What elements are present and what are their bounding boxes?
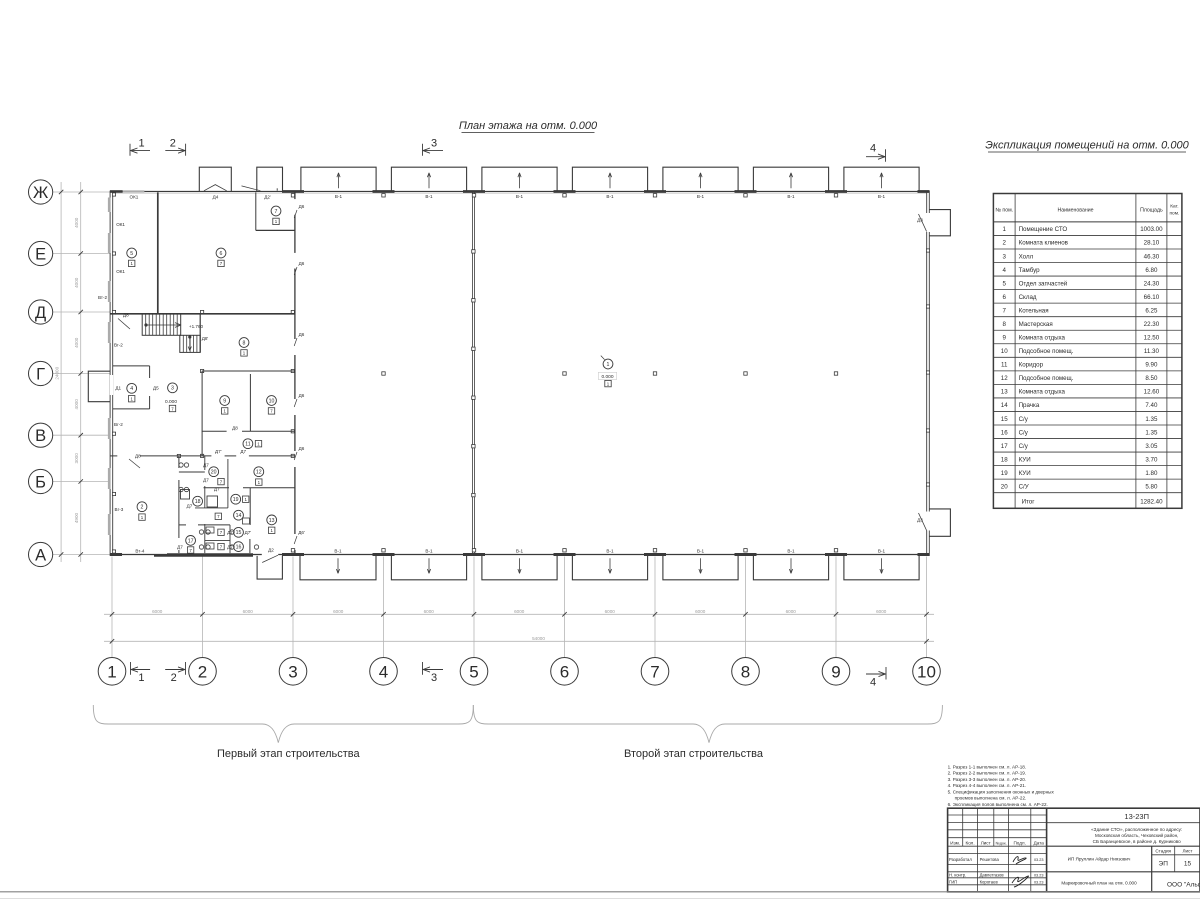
svg-text:1: 1 <box>138 138 144 150</box>
svg-text:12: 12 <box>256 470 262 476</box>
svg-text:Мастерская: Мастерская <box>1019 321 1053 328</box>
svg-text:1: 1 <box>107 662 116 681</box>
svg-text:6000: 6000 <box>514 609 525 614</box>
svg-text:5: 5 <box>469 662 478 681</box>
svg-text:Д7: Д7 <box>187 504 193 509</box>
svg-text:03.23: 03.23 <box>1034 858 1044 862</box>
svg-text:4: 4 <box>1003 267 1007 274</box>
svg-text:6.25: 6.25 <box>1145 307 1158 314</box>
svg-text:24000: 24000 <box>54 366 59 379</box>
svg-text:Разработал: Разработал <box>949 857 972 862</box>
svg-text:Г: Г <box>36 365 45 383</box>
svg-text:+1.760: +1.760 <box>189 324 204 329</box>
svg-text:13: 13 <box>1001 389 1008 396</box>
svg-text:1: 1 <box>607 362 610 368</box>
svg-text:03.23: 03.23 <box>1034 881 1044 885</box>
svg-text:3.70: 3.70 <box>1145 456 1158 463</box>
svg-text:7: 7 <box>275 209 278 215</box>
svg-text:Д7: Д7 <box>240 449 246 454</box>
svg-text:9: 9 <box>223 398 226 404</box>
svg-text:С/у: С/у <box>1019 443 1029 450</box>
svg-text:ОК1: ОК1 <box>116 269 125 274</box>
svg-text:Помещение СТО: Помещение СТО <box>1019 226 1068 233</box>
svg-text:4000: 4000 <box>74 217 79 228</box>
svg-text:16: 16 <box>236 545 242 551</box>
svg-text:Д3: Д3 <box>917 218 923 223</box>
svg-text:С/у: С/у <box>1019 416 1029 423</box>
svg-text:пом.: пом. <box>1169 212 1179 217</box>
svg-text:С/у: С/у <box>1019 429 1029 436</box>
svg-text:Д7: Д7 <box>214 487 220 492</box>
svg-text:12.60: 12.60 <box>1144 389 1160 396</box>
svg-text:4: 4 <box>870 677 876 689</box>
svg-text:54000: 54000 <box>532 636 545 641</box>
svg-text:Московская область, Чеховский: Московская область, Чеховский район, <box>1095 832 1179 838</box>
svg-text:8: 8 <box>741 662 750 681</box>
svg-text:1.80: 1.80 <box>1145 470 1158 477</box>
svg-text:Вг-2: Вг-2 <box>114 422 123 427</box>
svg-text:4: 4 <box>379 662 388 681</box>
svg-text:17: 17 <box>1001 443 1008 450</box>
svg-text:Тамбур: Тамбур <box>1019 267 1041 274</box>
svg-text:№ пом.: № пом. <box>995 208 1013 214</box>
svg-text:6000: 6000 <box>786 609 797 614</box>
svg-text:Изм.: Изм. <box>950 841 960 846</box>
svg-text:С/У: С/У <box>1019 483 1029 490</box>
svg-text:11.30: 11.30 <box>1144 348 1160 355</box>
svg-text:ООО "Альфа-проект": ООО "Альфа-проект" <box>1167 881 1200 888</box>
svg-text:Д8: Д8 <box>232 426 238 431</box>
svg-text:14: 14 <box>236 513 242 519</box>
svg-text:19: 19 <box>233 497 239 503</box>
svg-text:2: 2 <box>141 505 144 511</box>
svg-text:СБ Баранцевское, в районе д. К: СБ Баранцевское, в районе д. Курниково <box>1093 838 1182 844</box>
svg-text:2: 2 <box>170 138 176 150</box>
svg-text:В-1: В-1 <box>425 194 433 199</box>
svg-text:5: 5 <box>1003 280 1007 287</box>
svg-text:В-1: В-1 <box>878 194 886 199</box>
svg-text:Д7: Д7 <box>203 478 209 483</box>
svg-text:КУИ: КУИ <box>1019 456 1031 463</box>
svg-text:Комната отдыха: Комната отдыха <box>1019 389 1066 396</box>
svg-text:2. Разрез 2-2 выполнен см. л.: 2. Разрез 2-2 выполнен см. л. АР-19. <box>948 771 1027 776</box>
svg-text:6. Экспликация полов выполнена: 6. Экспликация полов выполнена см. л. АР… <box>948 802 1048 807</box>
svg-text:Д6: Д6 <box>299 261 305 266</box>
svg-text:4000: 4000 <box>74 337 79 348</box>
svg-text:Д6: Д6 <box>299 204 305 209</box>
svg-text:Комната отдыха: Комната отдыха <box>1019 335 1066 342</box>
svg-text:3: 3 <box>1003 253 1007 260</box>
svg-text:Коридор: Коридор <box>1019 362 1044 369</box>
svg-text:Вт-2: Вт-2 <box>98 295 108 300</box>
svg-text:Д7': Д7' <box>245 530 252 535</box>
svg-text:28.10: 28.10 <box>1144 240 1160 247</box>
svg-text:6000: 6000 <box>333 609 344 614</box>
svg-text:6: 6 <box>220 251 223 257</box>
svg-text:4. Разрез 4-4 выполнен см. л.: 4. Разрез 4-4 выполнен см. л. АР-21. <box>948 783 1027 788</box>
svg-text:Д7': Д7' <box>215 449 222 454</box>
svg-text:3: 3 <box>171 386 174 392</box>
svg-text:16: 16 <box>1001 429 1008 436</box>
svg-text:В-1: В-1 <box>878 548 886 553</box>
svg-text:20: 20 <box>211 470 217 476</box>
svg-text:Лист: Лист <box>1183 848 1194 853</box>
svg-text:66.10: 66.10 <box>1144 294 1160 301</box>
svg-text:4000: 4000 <box>74 277 79 288</box>
svg-text:1: 1 <box>1003 226 1007 233</box>
svg-text:6000: 6000 <box>876 609 887 614</box>
svg-text:Н. контр.: Н. контр. <box>949 872 966 877</box>
svg-text:17: 17 <box>188 538 194 544</box>
svg-text:ОК1: ОК1 <box>116 222 125 227</box>
svg-text:24.30: 24.30 <box>1144 280 1160 287</box>
svg-text:10: 10 <box>1001 348 1008 355</box>
svg-text:План этажа на отм. 0.000: План этажа на отм. 0.000 <box>459 120 598 132</box>
svg-text:Д8': Д8' <box>202 336 209 341</box>
svg-text:6000: 6000 <box>243 609 254 614</box>
svg-text:3: 3 <box>288 662 297 681</box>
svg-text:Первый этап строительства: Первый этап строительства <box>217 748 361 760</box>
svg-text:В-1: В-1 <box>606 548 614 553</box>
svg-text:Котельная: Котельная <box>1019 307 1049 314</box>
svg-text:0.000: 0.000 <box>165 399 177 405</box>
svg-text:5.80: 5.80 <box>1145 483 1158 490</box>
svg-text:Кат.: Кат. <box>1170 204 1178 210</box>
svg-text:6000: 6000 <box>424 609 435 614</box>
svg-text:Д7: Д7 <box>203 463 209 468</box>
svg-text:4000: 4000 <box>74 399 79 410</box>
svg-text:9.90: 9.90 <box>1145 362 1158 369</box>
svg-text:Д6: Д6 <box>299 446 305 451</box>
svg-text:Отдел запчастей: Отдел запчастей <box>1019 280 1068 287</box>
svg-text:20: 20 <box>1001 483 1008 490</box>
svg-text:Д7: Д7 <box>227 545 233 550</box>
svg-text:6000: 6000 <box>695 609 706 614</box>
svg-text:3.05: 3.05 <box>1145 443 1158 450</box>
svg-text:Прачка: Прачка <box>1019 402 1040 409</box>
svg-text:№док.: №док. <box>996 842 1007 846</box>
svg-text:2: 2 <box>1003 240 1007 247</box>
svg-text:4: 4 <box>130 386 133 392</box>
svg-text:Второй этап строительства: Второй этап строительства <box>624 748 764 760</box>
svg-text:18: 18 <box>195 499 201 505</box>
svg-text:В-1: В-1 <box>425 548 433 553</box>
svg-text:1: 1 <box>138 672 144 684</box>
svg-text:Вг-3: Вг-3 <box>115 507 124 512</box>
svg-text:Д7: Д7 <box>177 545 183 550</box>
svg-text:03.23: 03.23 <box>1034 873 1044 877</box>
svg-text:1.35: 1.35 <box>1145 416 1158 423</box>
svg-text:1003.00: 1003.00 <box>1140 226 1163 233</box>
svg-text:Лист: Лист <box>981 841 992 846</box>
svg-text:3: 3 <box>431 672 437 684</box>
svg-text:22.30: 22.30 <box>1144 321 1160 328</box>
svg-text:11: 11 <box>1001 362 1008 369</box>
svg-text:В-1: В-1 <box>334 548 342 553</box>
svg-text:Д5: Д5 <box>153 386 159 391</box>
svg-text:18: 18 <box>1001 456 1008 463</box>
svg-text:В-1: В-1 <box>787 194 795 199</box>
svg-text:Д: Д <box>35 304 46 322</box>
svg-text:Холл: Холл <box>1019 253 1034 260</box>
svg-text:7.40: 7.40 <box>1145 402 1158 409</box>
svg-text:6000: 6000 <box>605 609 616 614</box>
svg-text:7: 7 <box>1003 307 1007 314</box>
svg-text:КУИ: КУИ <box>1019 470 1031 477</box>
svg-text:Решетова: Решетова <box>980 857 1000 862</box>
svg-text:Д8: Д8 <box>123 313 129 318</box>
svg-text:10: 10 <box>917 662 936 681</box>
svg-text:10: 10 <box>269 398 275 404</box>
svg-text:2: 2 <box>171 672 177 684</box>
svg-text:15: 15 <box>1184 861 1192 868</box>
svg-text:Итог: Итог <box>1022 499 1036 506</box>
svg-text:13-23П: 13-23П <box>1124 812 1149 821</box>
svg-text:Вг-2: Вг-2 <box>114 343 123 348</box>
svg-text:8.50: 8.50 <box>1145 375 1158 382</box>
svg-text:В-1: В-1 <box>606 194 614 199</box>
svg-text:ГИП: ГИП <box>949 880 957 885</box>
svg-text:Площадь: Площадь <box>1140 208 1163 214</box>
svg-text:В-1: В-1 <box>516 548 524 553</box>
svg-text:15: 15 <box>1001 416 1008 423</box>
svg-text:В-1: В-1 <box>516 194 524 199</box>
svg-text:ИП Яруллин Айдар Ниязович: ИП Яруллин Айдар Ниязович <box>1068 856 1131 862</box>
svg-text:Стадия: Стадия <box>1155 848 1171 853</box>
svg-text:В-1: В-1 <box>787 548 795 553</box>
svg-text:Д4: Д4 <box>213 194 219 199</box>
svg-text:12: 12 <box>1001 375 1008 382</box>
svg-text:7: 7 <box>650 662 659 681</box>
svg-text:6000: 6000 <box>152 609 163 614</box>
svg-text:Комната клиенов: Комната клиенов <box>1019 240 1069 247</box>
svg-text:4: 4 <box>870 143 876 155</box>
svg-text:ОК1: ОК1 <box>130 195 139 200</box>
svg-text:9: 9 <box>1003 335 1007 342</box>
svg-text:3. Разрез 3-3 выполнен см. л.: 3. Разрез 3-3 выполнен см. л. АР-20. <box>948 777 1027 782</box>
svg-text:12.50: 12.50 <box>1144 335 1160 342</box>
svg-text:проемов выполнена см. л. АР-22: проемов выполнена см. л. АР-22. <box>955 796 1027 801</box>
svg-text:14: 14 <box>1001 402 1008 409</box>
svg-text:5. Спецификация заполнения око: 5. Спецификация заполнения оконных и две… <box>948 789 1055 794</box>
svg-text:В-1: В-1 <box>335 194 343 199</box>
svg-text:Вт-4: Вт-4 <box>135 548 145 553</box>
svg-text:11: 11 <box>245 442 250 448</box>
svg-text:Склад: Склад <box>1019 294 1037 301</box>
svg-text:Кол.: Кол. <box>966 841 975 846</box>
svg-text:Коротаев: Коротаев <box>980 880 999 885</box>
svg-text:В: В <box>35 427 46 445</box>
svg-text:Д2': Д2' <box>264 194 271 199</box>
svg-text:Д3: Д3 <box>917 518 923 523</box>
svg-text:3000: 3000 <box>74 453 79 464</box>
svg-text:5: 5 <box>130 251 133 257</box>
svg-text:4900: 4900 <box>74 512 79 523</box>
svg-text:6: 6 <box>560 662 569 681</box>
svg-text:Д8: Д8 <box>135 454 141 459</box>
svg-text:Е: Е <box>35 245 46 263</box>
svg-text:8: 8 <box>1003 321 1007 328</box>
svg-text:1. Разрез 1-1 выполнен см. л.: 1. Разрез 1-1 выполнен см. л. АР-18. <box>948 764 1027 769</box>
svg-text:Подсобное помещ.: Подсобное помещ. <box>1019 348 1074 355</box>
svg-text:Ж: Ж <box>33 184 49 202</box>
svg-text:Наименование: Наименование <box>1058 208 1094 214</box>
svg-text:6: 6 <box>1003 294 1007 301</box>
svg-text:Д6': Д6' <box>298 530 305 535</box>
svg-text:Б: Б <box>35 473 46 491</box>
svg-text:А: А <box>35 546 46 564</box>
svg-text:13: 13 <box>269 518 275 524</box>
svg-text:46.30: 46.30 <box>1144 253 1160 260</box>
svg-text:8: 8 <box>243 340 246 346</box>
svg-text:9: 9 <box>831 662 840 681</box>
svg-text:6.80: 6.80 <box>1145 267 1158 274</box>
svg-text:Подсобное помещ.: Подсобное помещ. <box>1019 375 1074 382</box>
svg-text:Д7: Д7 <box>227 530 233 535</box>
svg-text:1.35: 1.35 <box>1145 429 1158 436</box>
svg-text:В-1: В-1 <box>697 548 705 553</box>
svg-text:0.000: 0.000 <box>601 374 613 380</box>
svg-text:ЭП: ЭП <box>1159 861 1169 868</box>
svg-text:Маркировочный план на отм. 0.0: Маркировочный план на отм. 0.000 <box>1061 880 1137 886</box>
svg-text:3: 3 <box>431 138 437 150</box>
svg-text:«Здание СТО», расположенное по: «Здание СТО», расположенное по адресу: <box>1091 827 1182 832</box>
svg-text:Экспликация помещений на отм.: Экспликация помещений на отм. 0.000 <box>985 140 1189 152</box>
svg-text:2: 2 <box>198 662 207 681</box>
svg-text:19: 19 <box>1001 470 1008 477</box>
svg-text:Давлетгазов: Давлетгазов <box>980 872 1005 877</box>
svg-text:Д1: Д1 <box>115 386 121 391</box>
svg-text:Д2: Д2 <box>268 547 274 552</box>
svg-text:В-1: В-1 <box>697 194 705 199</box>
svg-text:Дата: Дата <box>1034 841 1045 846</box>
svg-text:1282.40: 1282.40 <box>1140 499 1163 506</box>
svg-text:Д6: Д6 <box>299 393 305 398</box>
svg-text:Подл.: Подл. <box>1013 841 1025 846</box>
svg-text:Д6: Д6 <box>299 332 305 337</box>
svg-text:15: 15 <box>236 530 242 536</box>
